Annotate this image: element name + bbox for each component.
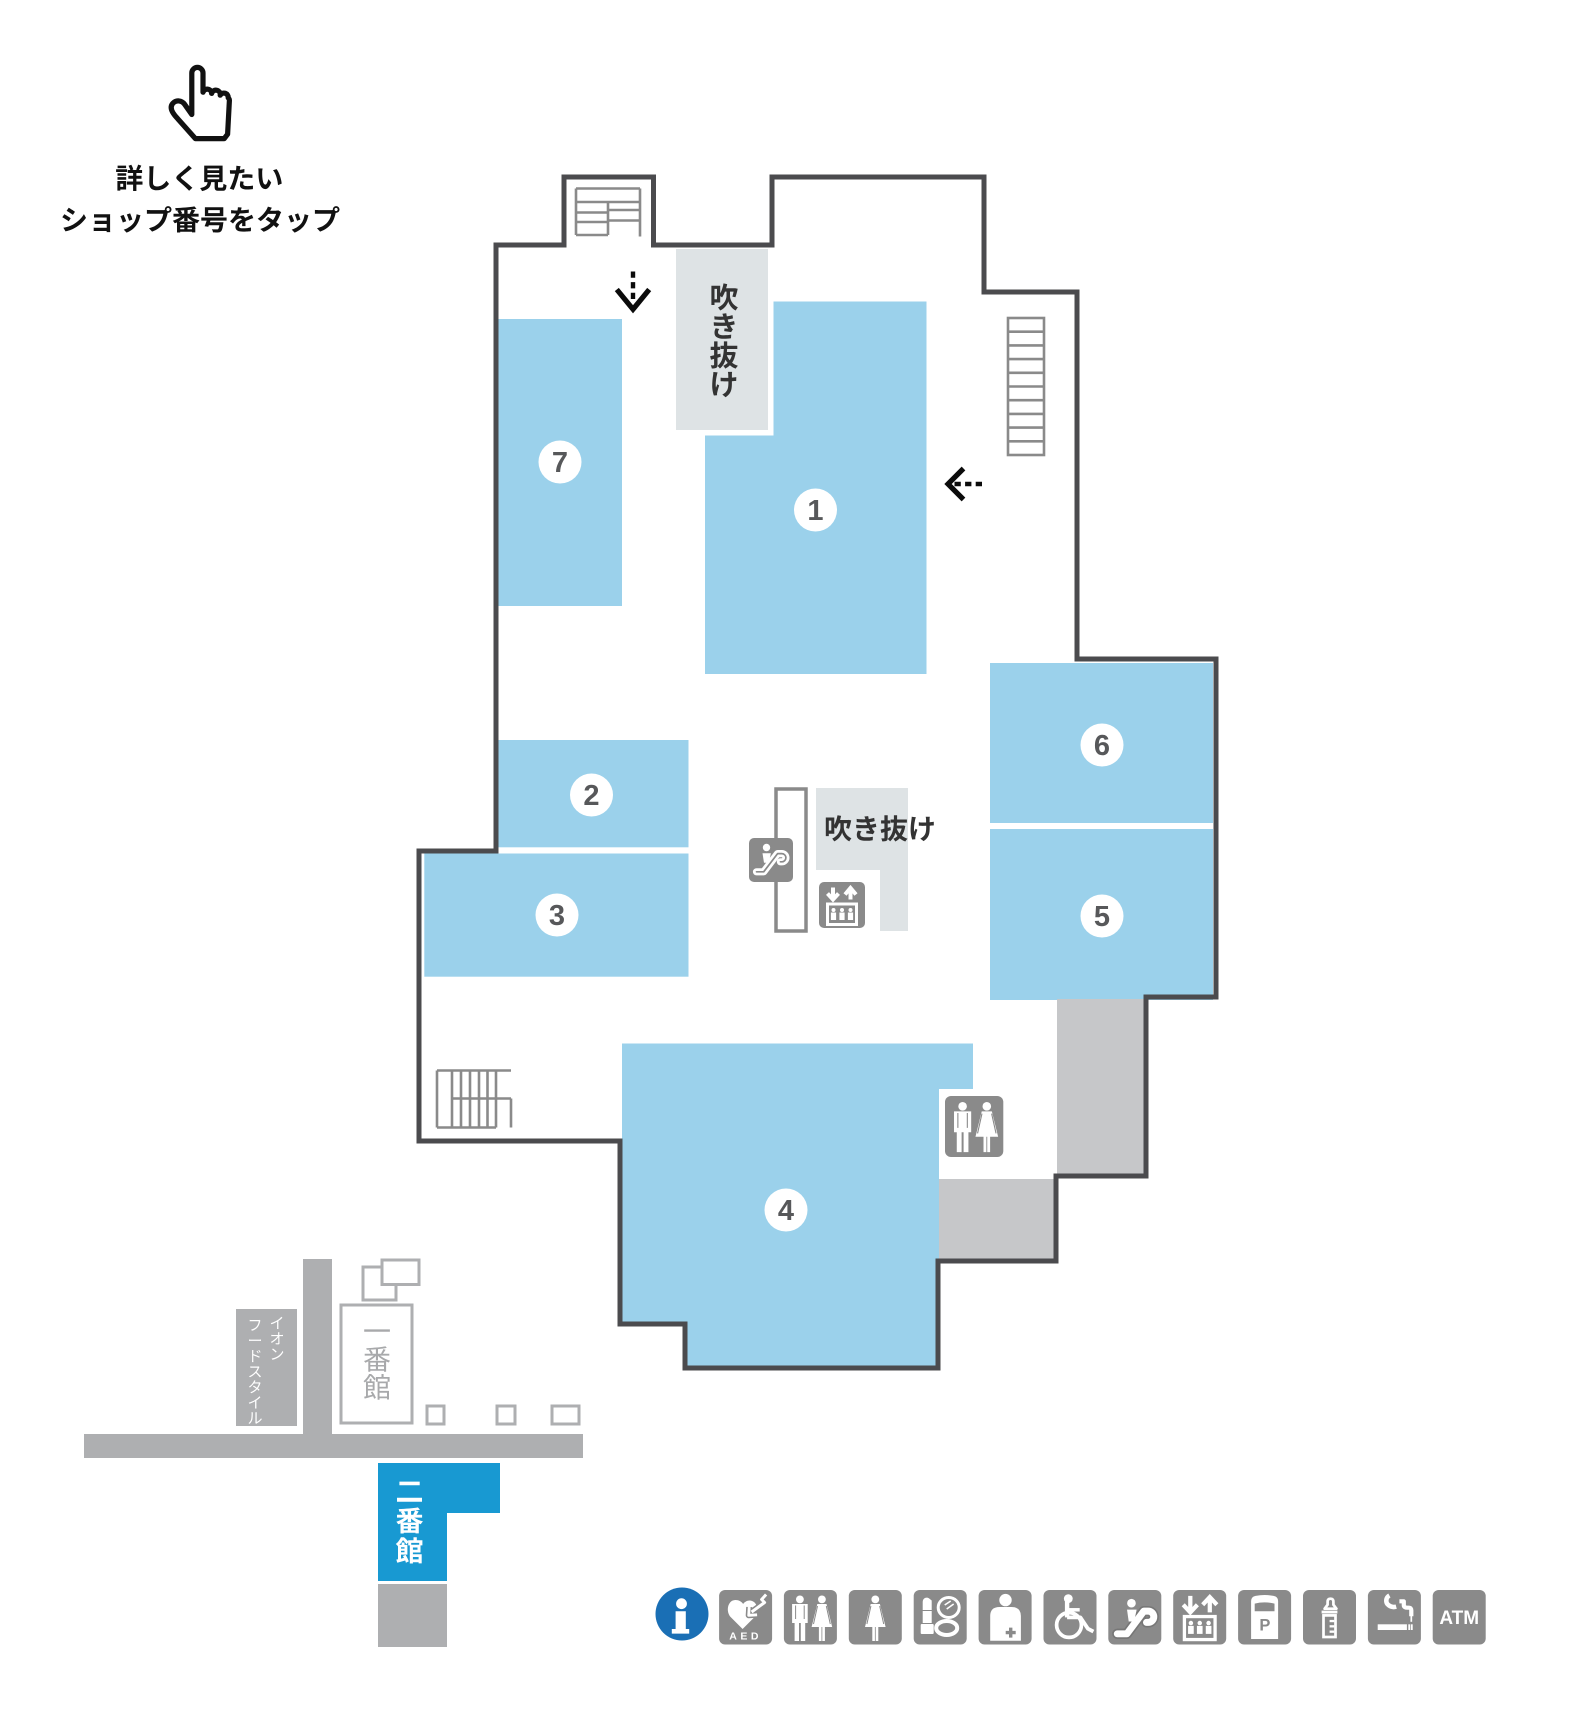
svg-text:2: 2 — [583, 780, 599, 812]
svg-text:5: 5 — [1094, 901, 1110, 933]
svg-text:7: 7 — [552, 447, 568, 479]
svg-text:3: 3 — [549, 900, 565, 932]
svg-text:4: 4 — [778, 1195, 794, 1227]
svg-text:AED: AED — [729, 1631, 762, 1643]
svg-text:1: 1 — [807, 495, 823, 527]
svg-text:ATM: ATM — [1439, 1608, 1479, 1629]
svg-text:P: P — [1259, 1617, 1270, 1635]
svg-text:6: 6 — [1094, 730, 1110, 762]
